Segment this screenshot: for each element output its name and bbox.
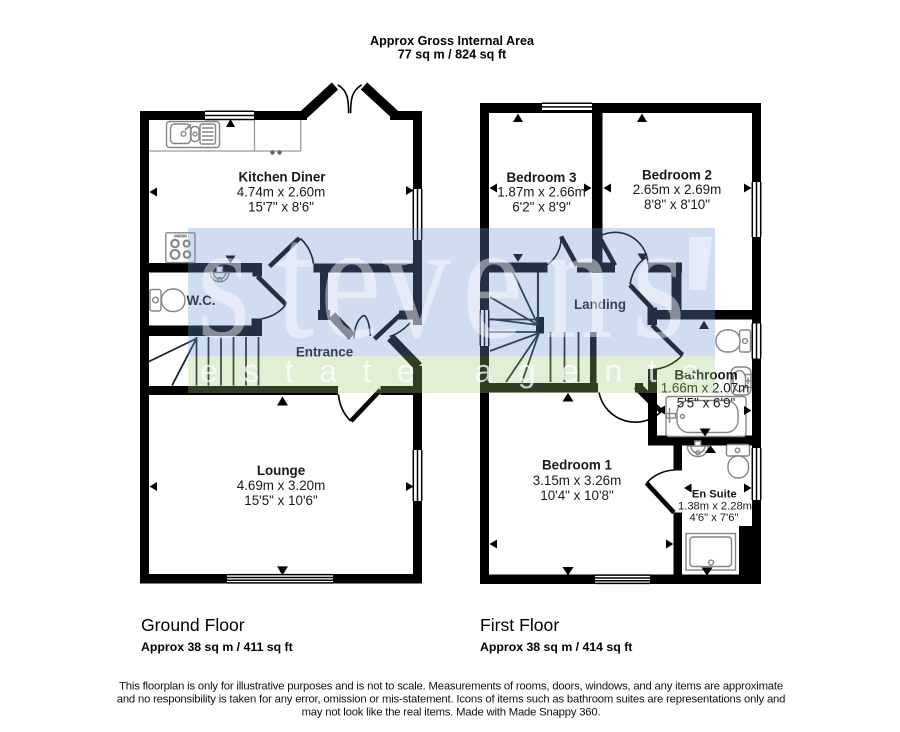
svg-text:4'6" x 7'6": 4'6" x 7'6" [690, 512, 739, 524]
svg-text:estate agents: estate agents [200, 353, 724, 389]
svg-text:Ground Floor: Ground Floor [141, 615, 245, 635]
svg-text:5'5" x 6'9": 5'5" x 6'9" [677, 395, 736, 410]
svg-text:En Suite: En Suite [692, 489, 737, 501]
svg-text:10'4" x 10'8": 10'4" x 10'8" [540, 488, 614, 503]
svg-text:Bedroom 3: Bedroom 3 [507, 170, 577, 185]
svg-text:Approx Gross Internal Area: Approx Gross Internal Area [370, 34, 535, 48]
svg-text:Bedroom 2: Bedroom 2 [642, 167, 712, 182]
svg-text:1.38m x 2.28m: 1.38m x 2.28m [678, 501, 752, 513]
svg-text:15'5" x 10'6": 15'5" x 10'6" [244, 493, 318, 508]
svg-text:77 sq m / 824 sq ft: 77 sq m / 824 sq ft [398, 48, 507, 62]
svg-text:Approx 38 sq m / 411 sq ft: Approx 38 sq m / 411 sq ft [141, 640, 293, 654]
svg-text:4.69m x 3.20m: 4.69m x 3.20m [237, 478, 326, 493]
svg-text:may not look like the real ite: may not look like the real items. Made w… [302, 707, 601, 719]
svg-text:This floorplan is only for ill: This floorplan is only for illustrative … [119, 681, 783, 693]
svg-text:3.15m x 3.26m: 3.15m x 3.26m [533, 473, 622, 488]
svg-text:and no responsibility is taken: and no responsibility is taken for any e… [117, 694, 786, 706]
svg-text:Kitchen Diner: Kitchen Diner [238, 170, 326, 185]
svg-text:Bedroom 1: Bedroom 1 [542, 458, 612, 473]
svg-text:Approx 38 sq m / 414 sq ft: Approx 38 sq m / 414 sq ft [480, 640, 632, 654]
svg-text:Lounge: Lounge [257, 463, 305, 478]
svg-text:First Floor: First Floor [480, 615, 559, 635]
